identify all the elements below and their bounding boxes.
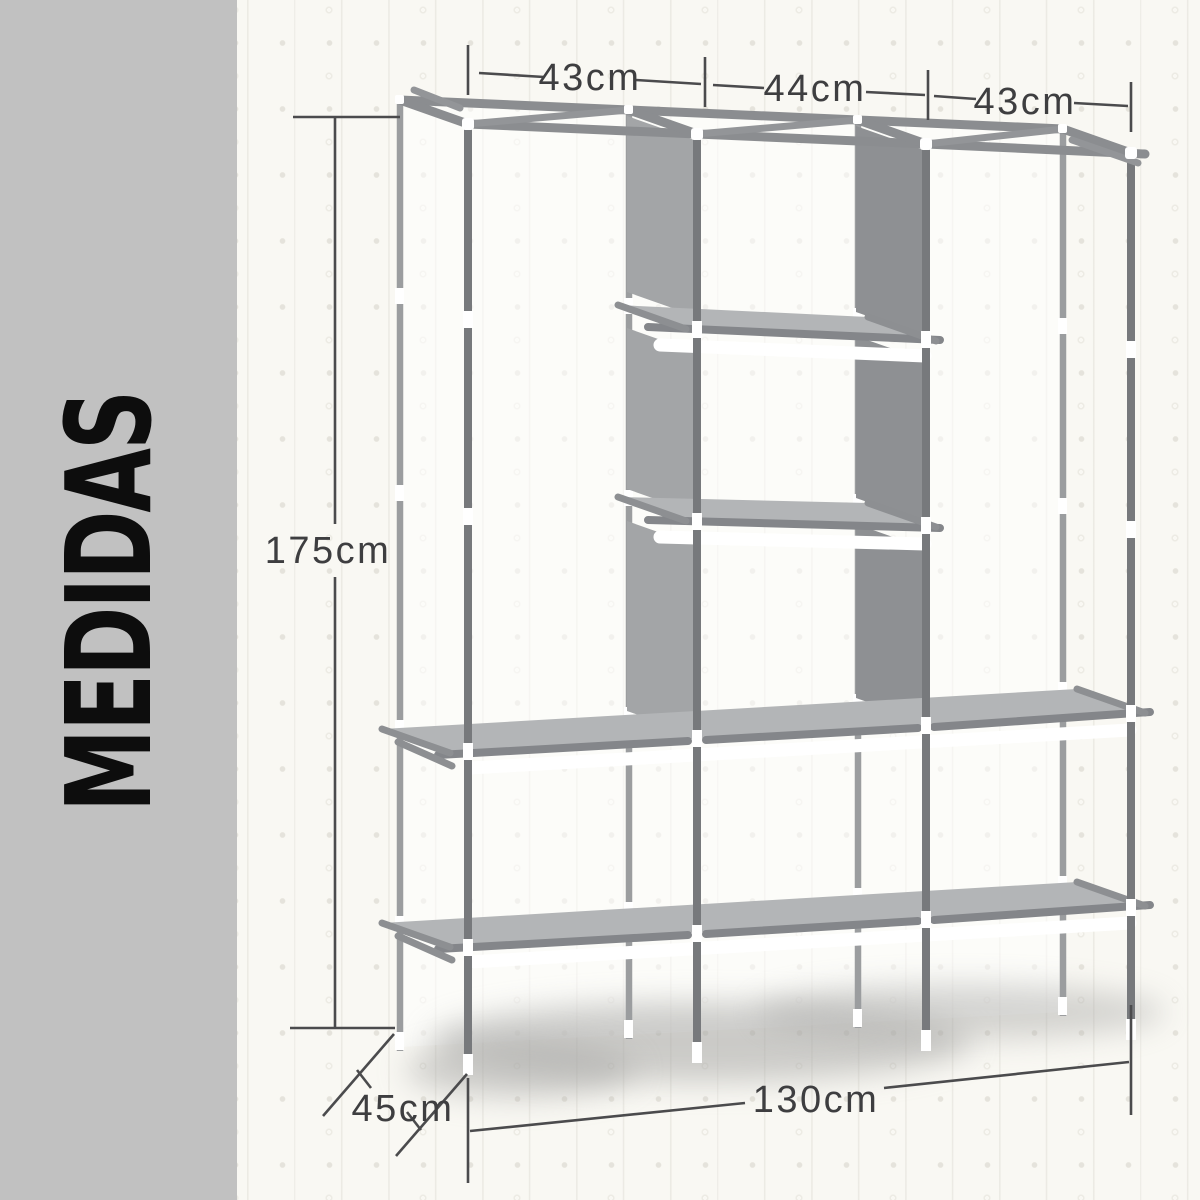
dimension-height: 175cm	[265, 117, 400, 1028]
dim-label-width: 130cm	[753, 1079, 880, 1121]
sidebar: MEDIDAS	[0, 0, 237, 1200]
sidebar-title: MEDIDAS	[40, 392, 178, 812]
dim-label-depth: 45cm	[352, 1088, 455, 1130]
dim-label-height: 175cm	[265, 530, 392, 572]
wardrobe-dimension-diagram: 43cm 44cm 43cm 175cm 45cm	[0, 0, 1200, 1200]
dim-label-top-middle: 44cm	[764, 68, 867, 110]
product-dimensions-page: 43cm 44cm 43cm 175cm 45cm	[0, 0, 1200, 1200]
dim-label-top-right: 43cm	[974, 81, 1077, 123]
dim-label-top-left: 43cm	[539, 57, 642, 99]
